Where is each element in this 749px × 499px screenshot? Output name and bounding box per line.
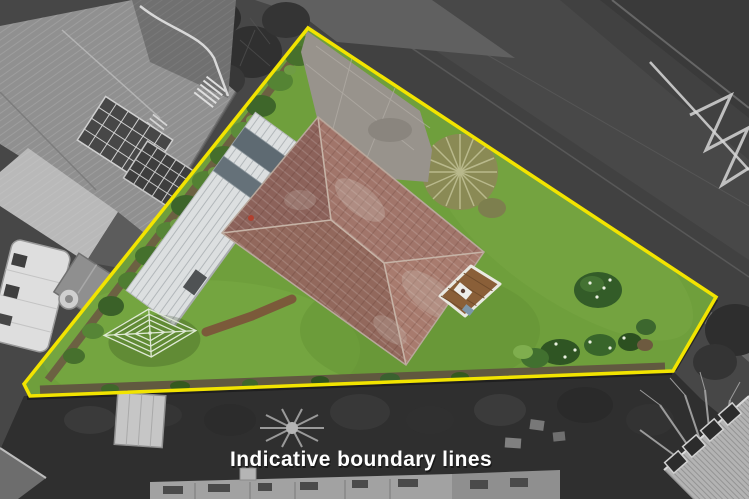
- caption-text: Indicative boundary lines: [230, 448, 492, 471]
- chimney: [248, 215, 254, 221]
- trailer: [114, 392, 166, 447]
- aerial-photo: Indicative boundary lines Indicative bou…: [0, 0, 749, 499]
- aerial-photo-canvas: Indicative boundary lines Indicative bou…: [0, 0, 749, 499]
